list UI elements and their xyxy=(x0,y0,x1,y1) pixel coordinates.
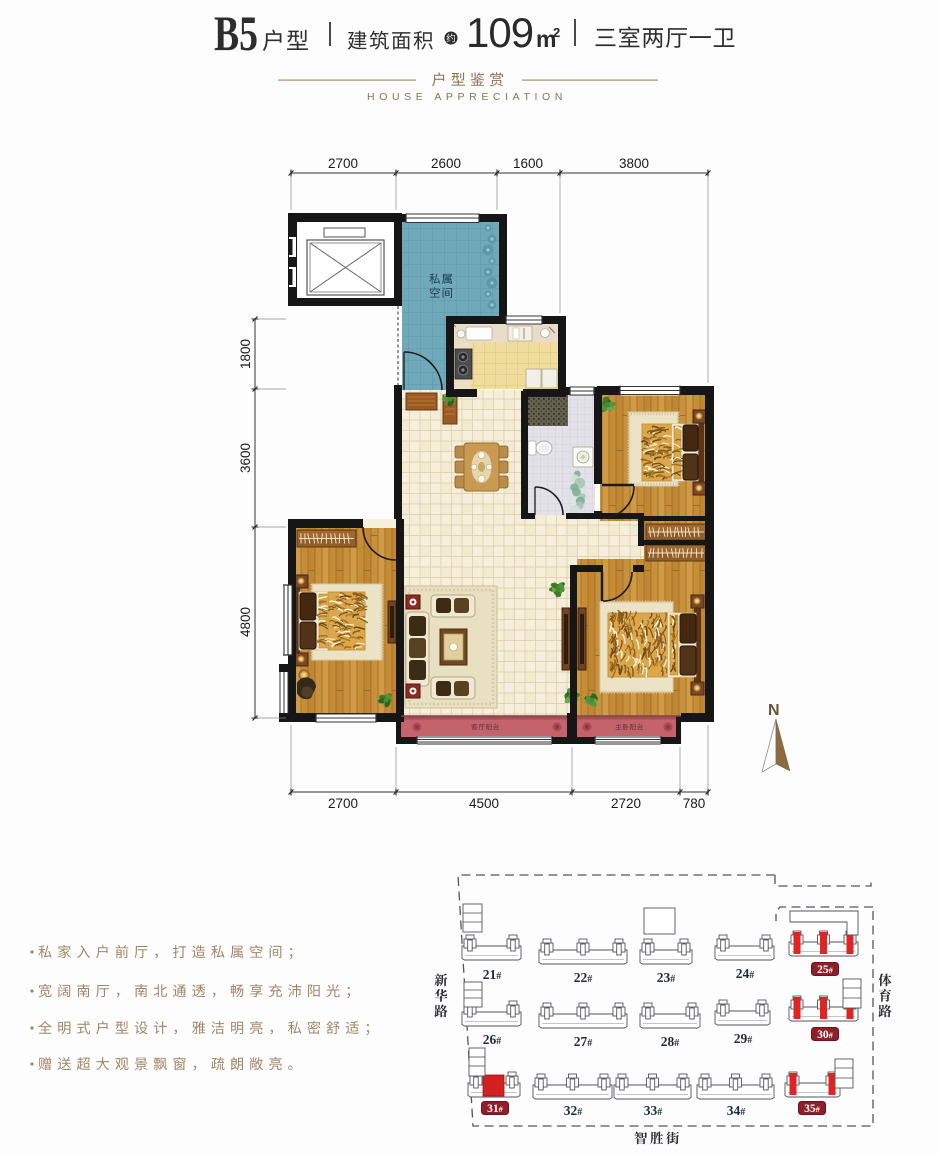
svg-text:4500: 4500 xyxy=(469,796,499,811)
svg-text:1600: 1600 xyxy=(513,156,543,171)
svg-text:1800: 1800 xyxy=(238,339,253,369)
svg-text:2700: 2700 xyxy=(328,156,358,171)
svg-text:2600: 2600 xyxy=(431,156,461,171)
svg-text:35#: 35# xyxy=(804,1103,821,1115)
svg-text:3600: 3600 xyxy=(238,443,253,473)
svg-text:109: 109 xyxy=(466,9,533,56)
svg-text:25#: 25# xyxy=(817,964,834,976)
svg-text:30#: 30# xyxy=(817,1029,834,1041)
svg-text:2: 2 xyxy=(553,25,560,40)
svg-text:N: N xyxy=(768,702,780,719)
svg-text:2700: 2700 xyxy=(328,796,358,811)
svg-text:2720: 2720 xyxy=(611,796,641,811)
svg-text:B5: B5 xyxy=(214,5,258,61)
svg-text:31#: 31# xyxy=(487,1103,504,1115)
svg-text:4800: 4800 xyxy=(238,607,253,637)
svg-text:HOUSE APPRECIATION: HOUSE APPRECIATION xyxy=(367,91,567,103)
svg-text:3800: 3800 xyxy=(619,156,649,171)
svg-text:780: 780 xyxy=(683,796,706,811)
